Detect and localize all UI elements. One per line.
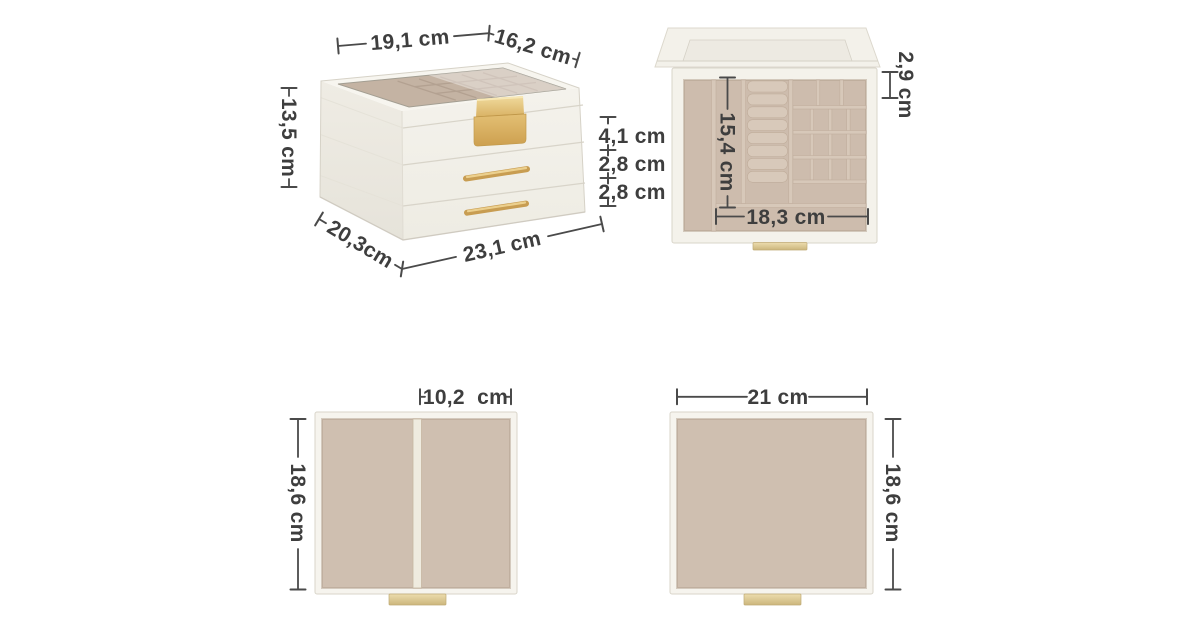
grid-wall: [793, 106, 866, 110]
dim-tick: [337, 39, 338, 54]
dim-line: [548, 224, 602, 236]
drawer-pull-tab: [744, 594, 801, 605]
product-dimension-diagram: 19,1 cm 16,2 cm 13,5 cm 4,1 cm 2,8 cm 2,…: [0, 0, 1200, 630]
dim-drawer-width: 21 cm: [677, 386, 867, 409]
dim-tick: [401, 262, 403, 277]
divided-drawer-view: 10,2 cm 18,6 cm: [286, 386, 517, 605]
divider-wall-rolls: [789, 80, 793, 204]
dim-top-depth-label: 16,2 cm: [492, 25, 574, 70]
open-top-view: 15,4 cm 2,9 cm 18,3 cm: [655, 28, 917, 250]
grid-wall: [828, 109, 832, 180]
dim-line: [319, 219, 326, 223]
dim-tier-middle-label: 2,8 cm: [599, 153, 666, 176]
dim-line: [454, 33, 489, 36]
ring-roll: [748, 171, 788, 182]
drawer-pull-tab: [753, 243, 807, 251]
grid-wall: [793, 156, 866, 160]
dim-drawer-depth-right-label: 18,6 cm: [881, 463, 904, 542]
ring-roll: [748, 94, 788, 105]
open-lid: [655, 28, 880, 67]
divider-wall-col2: [741, 80, 746, 204]
dim-line: [338, 44, 366, 46]
lid-inner-recess: [683, 40, 852, 61]
dim-top-width-label: 19,1 cm: [370, 26, 451, 56]
ring-roll: [748, 146, 788, 157]
grid-wall: [793, 131, 866, 135]
dim-small-cell: 2,9 cm: [883, 51, 918, 118]
dim-tier-stack: 4,1 cm 2,8 cm 2,8 cm: [599, 117, 666, 206]
dim-top-depth: 16,2 cm: [489, 25, 580, 70]
dim-drawer-depth-left: 18,6 cm: [286, 419, 309, 590]
ring-roll: [748, 120, 788, 131]
ring-roll: [748, 107, 788, 118]
dim-line: [395, 265, 402, 269]
dim-line: [402, 257, 456, 269]
dim-base-width-label: 23,1 cm: [461, 227, 543, 267]
dim-drawer-depth-left-label: 18,6 cm: [286, 463, 309, 542]
dim-tray-width-label: 18,3 cm: [746, 206, 825, 229]
dim-compartment-width-label: 10,2 cm: [423, 386, 508, 409]
dim-tier-top-label: 4,1 cm: [599, 125, 666, 148]
dim-drawer-width-label: 21 cm: [747, 386, 808, 409]
grid-wall: [847, 109, 851, 180]
dim-small-cell-label: 2,9 cm: [894, 51, 917, 118]
dim-height: 13,5 cm: [277, 88, 300, 187]
drawer-divider: [413, 419, 422, 588]
dimension-diagram-canvas: 19,1 cm 16,2 cm 13,5 cm 4,1 cm 2,8 cm 2,…: [0, 0, 1200, 630]
grid-wall: [810, 109, 814, 180]
clasp-plate: [474, 114, 526, 146]
grid-wall: [816, 80, 820, 106]
dim-tick-top: [601, 117, 616, 124]
dim-inner-depth-label: 15,4 cm: [716, 112, 739, 191]
grid-wall: [840, 80, 844, 106]
ring-roll: [748, 158, 788, 169]
dim-drawer-depth-right: 18,6 cm: [881, 419, 904, 590]
gold-clasp: [474, 96, 526, 146]
dim-tick: [315, 213, 323, 226]
dim-tier-bottom-label: 2,8 cm: [599, 181, 666, 204]
ring-roll: [748, 133, 788, 144]
drawer-pull-tab: [389, 594, 446, 605]
perspective-view: 19,1 cm 16,2 cm 13,5 cm 4,1 cm 2,8 cm 2,…: [277, 25, 666, 277]
grid-wall: [793, 180, 866, 184]
dim-height-label: 13,5 cm: [277, 98, 300, 177]
ring-roll: [748, 81, 788, 92]
dim-compartment-width: 10,2 cm: [420, 386, 511, 409]
drawer-interior: [677, 419, 866, 588]
dim-top-width: 19,1 cm: [337, 26, 489, 56]
plain-drawer-view: 21 cm 18,6 cm: [670, 386, 904, 605]
